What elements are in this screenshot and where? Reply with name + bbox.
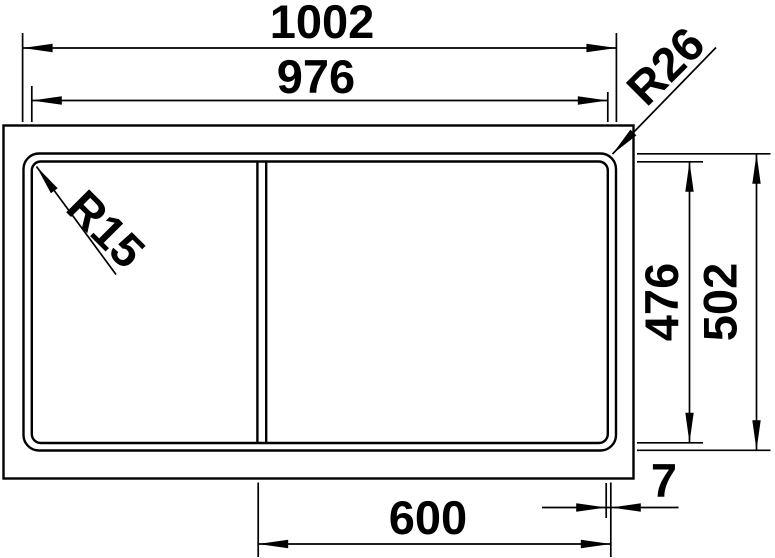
dim-bowl-width: 600 (258, 483, 611, 558)
edge-offset-label: 7 (651, 454, 677, 507)
technical-drawing-canvas: 1002 976 476 502 (0, 0, 775, 558)
arrowhead-up-icon (752, 154, 760, 184)
arrowhead-left-icon (258, 540, 288, 548)
arrowhead-left-icon (23, 44, 53, 52)
arrowhead-right-icon (586, 44, 616, 52)
arrowhead-right-icon (581, 540, 611, 548)
arrowhead-down-icon (752, 420, 760, 450)
arrowhead-down-icon (685, 413, 693, 443)
sink-dimension-drawing: 1002 976 476 502 (0, 0, 775, 558)
dim-inner-width: 976 (32, 50, 608, 122)
inner-radius-label: R15 (57, 180, 155, 278)
sink-outlines (4, 126, 634, 479)
inner-depth-label: 476 (635, 263, 688, 341)
arrowhead-right-icon (576, 503, 606, 511)
overall-width-label: 1002 (270, 0, 375, 48)
bowl-width-label: 600 (389, 491, 467, 544)
arrowhead-left-icon (32, 96, 62, 104)
arrowhead-up-icon (685, 162, 693, 192)
inner-width-label: 976 (277, 50, 355, 103)
overall-depth-label: 502 (694, 263, 747, 341)
callout-inner-radius: R15 (37, 167, 156, 279)
arrowhead-left-icon (611, 503, 641, 511)
arrowhead-right-icon (578, 96, 608, 104)
callout-outer-radius: R26 (613, 17, 717, 154)
countertop-outline (4, 126, 634, 479)
arrowhead-icon (37, 167, 58, 194)
outer-radius-label: R26 (616, 17, 714, 115)
